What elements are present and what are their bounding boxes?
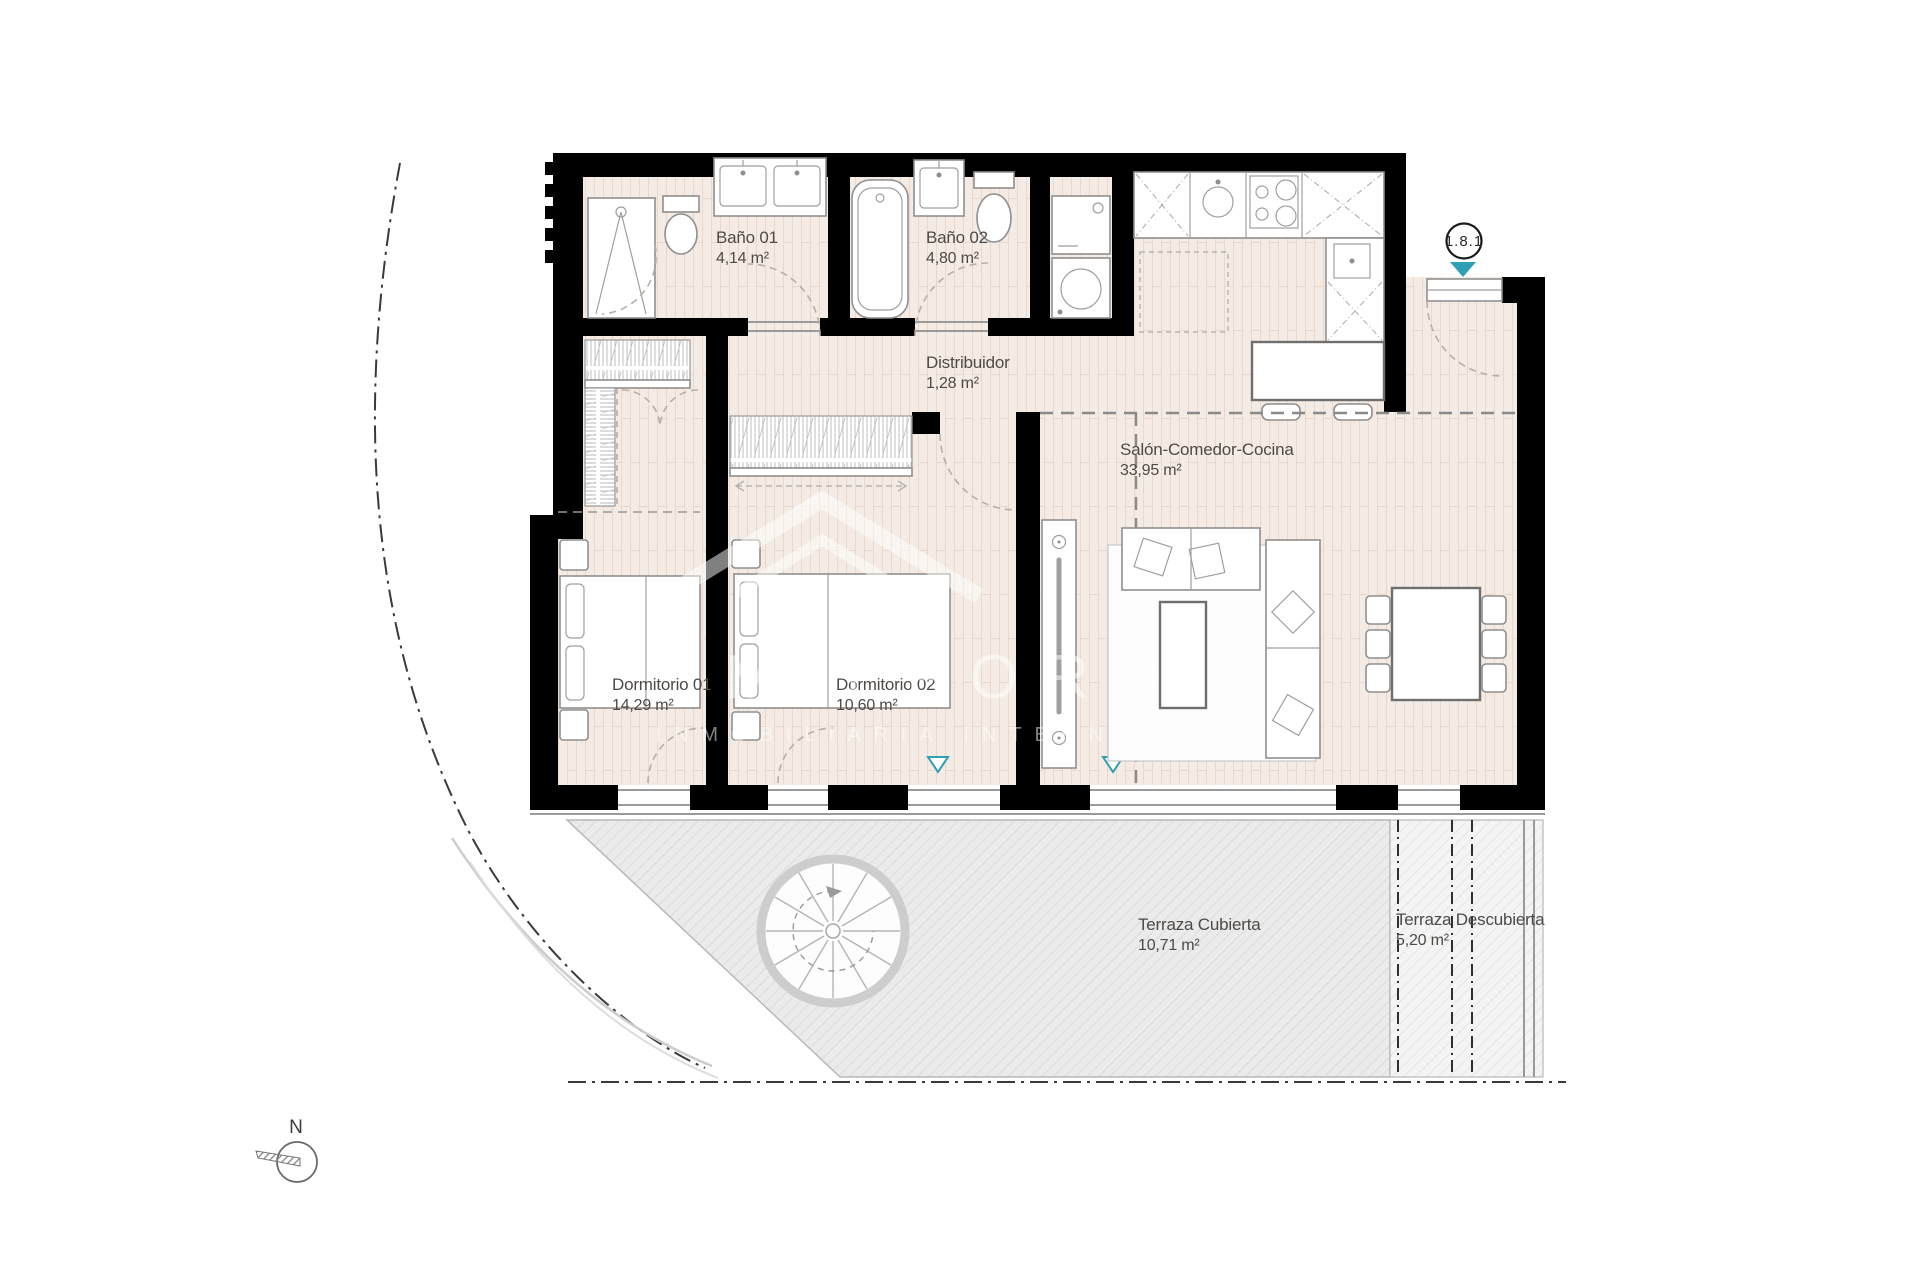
terraces: Terraza Cubierta 10,71 m² Terraza Descub… <box>567 820 1545 1077</box>
chair <box>1482 664 1506 692</box>
room-area-terraza-cubierta: 10,71 m² <box>1138 937 1200 954</box>
room-label-bano-02: Baño 02 <box>926 228 988 247</box>
north-label: N <box>289 1117 303 1138</box>
toilet <box>663 196 699 254</box>
entry-notch-mask <box>1406 140 1566 277</box>
window-living-main <box>1090 787 1336 809</box>
room-area-salon: 33,95 m² <box>1120 462 1182 479</box>
room-area-distribuidor: 1,28 m² <box>926 375 980 392</box>
window-living-left <box>908 787 1000 809</box>
floor-plan-canvas: Terraza Cubierta 10,71 m² Terraza Descub… <box>0 0 1920 1280</box>
dining-set <box>1366 588 1506 700</box>
chair <box>1366 630 1390 658</box>
room-label-distribuidor: Distribuidor <box>926 353 1010 372</box>
sink <box>914 160 964 216</box>
room-area-bano-01: 4,14 m² <box>716 250 770 267</box>
room-area-bano-02: 4,80 m² <box>926 250 980 267</box>
room-area-dormitorio-01: 14,29 m² <box>612 697 674 714</box>
nightstand <box>560 710 588 740</box>
watermark-subtitle: INMOBILIARIA INTERNACIONAL <box>655 724 1294 746</box>
nightstand <box>560 540 588 570</box>
chair <box>1366 664 1390 692</box>
shower <box>588 198 656 318</box>
spiral-staircase <box>761 859 905 1003</box>
room-label-terraza-cubierta: Terraza Cubierta <box>1138 915 1261 934</box>
double-sink-vanity <box>714 158 826 216</box>
unit-badge-label: 1.8.1 <box>1445 233 1483 250</box>
room-area-terraza-descubierta: 5,20 m² <box>1396 932 1450 949</box>
wardrobe-left <box>585 388 617 506</box>
chair <box>1482 596 1506 624</box>
north-needle-icon <box>256 1151 300 1166</box>
window-living-right <box>1398 787 1460 809</box>
wardrobe-top <box>585 340 690 388</box>
room-label-terraza-descubierta: Terraza Descubierta <box>1396 910 1545 929</box>
room-label-dormitorio-01: Dormitorio 01 <box>612 675 711 694</box>
room-label-bano-01: Baño 01 <box>716 228 778 247</box>
bathtub <box>852 180 908 318</box>
kitchen-tall-units <box>1326 238 1384 342</box>
chair <box>1366 596 1390 624</box>
dining-table <box>1392 588 1480 700</box>
chair <box>1482 630 1506 658</box>
watermark-brand: MILFORD <box>725 643 1186 712</box>
window-dorm01 <box>618 787 690 809</box>
room-label-salon: Salón-Comedor-Cocina <box>1120 440 1294 459</box>
north-arrow: N <box>256 1117 317 1182</box>
terraza-cubierta-area <box>567 820 1390 1077</box>
window-dorm02 <box>768 787 828 809</box>
